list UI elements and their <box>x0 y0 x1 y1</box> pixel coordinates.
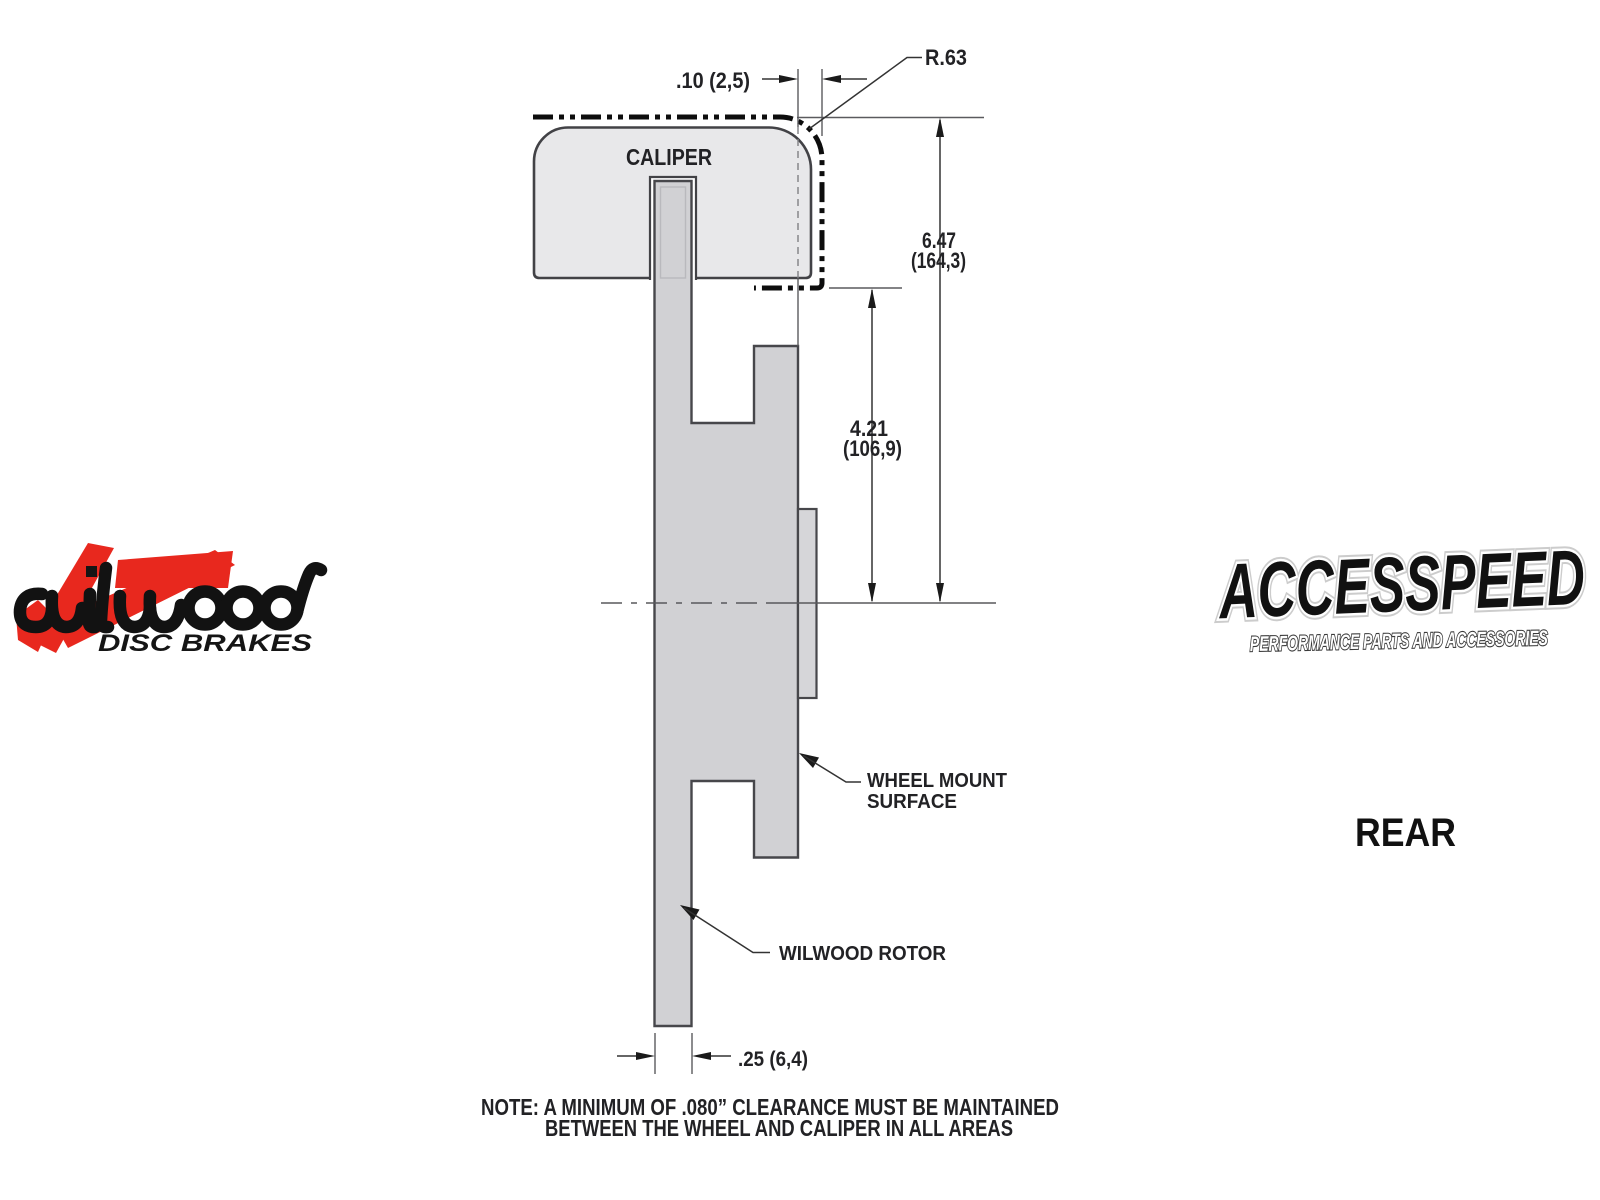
svg-text:PERFORMANCE PARTS AND ACCESSOR: PERFORMANCE PARTS AND ACCESSORIES <box>1250 627 1548 656</box>
svg-text:REAR: REAR <box>1355 811 1456 855</box>
svg-text:ACCESSPEED: ACCESSPEED <box>1216 533 1587 636</box>
